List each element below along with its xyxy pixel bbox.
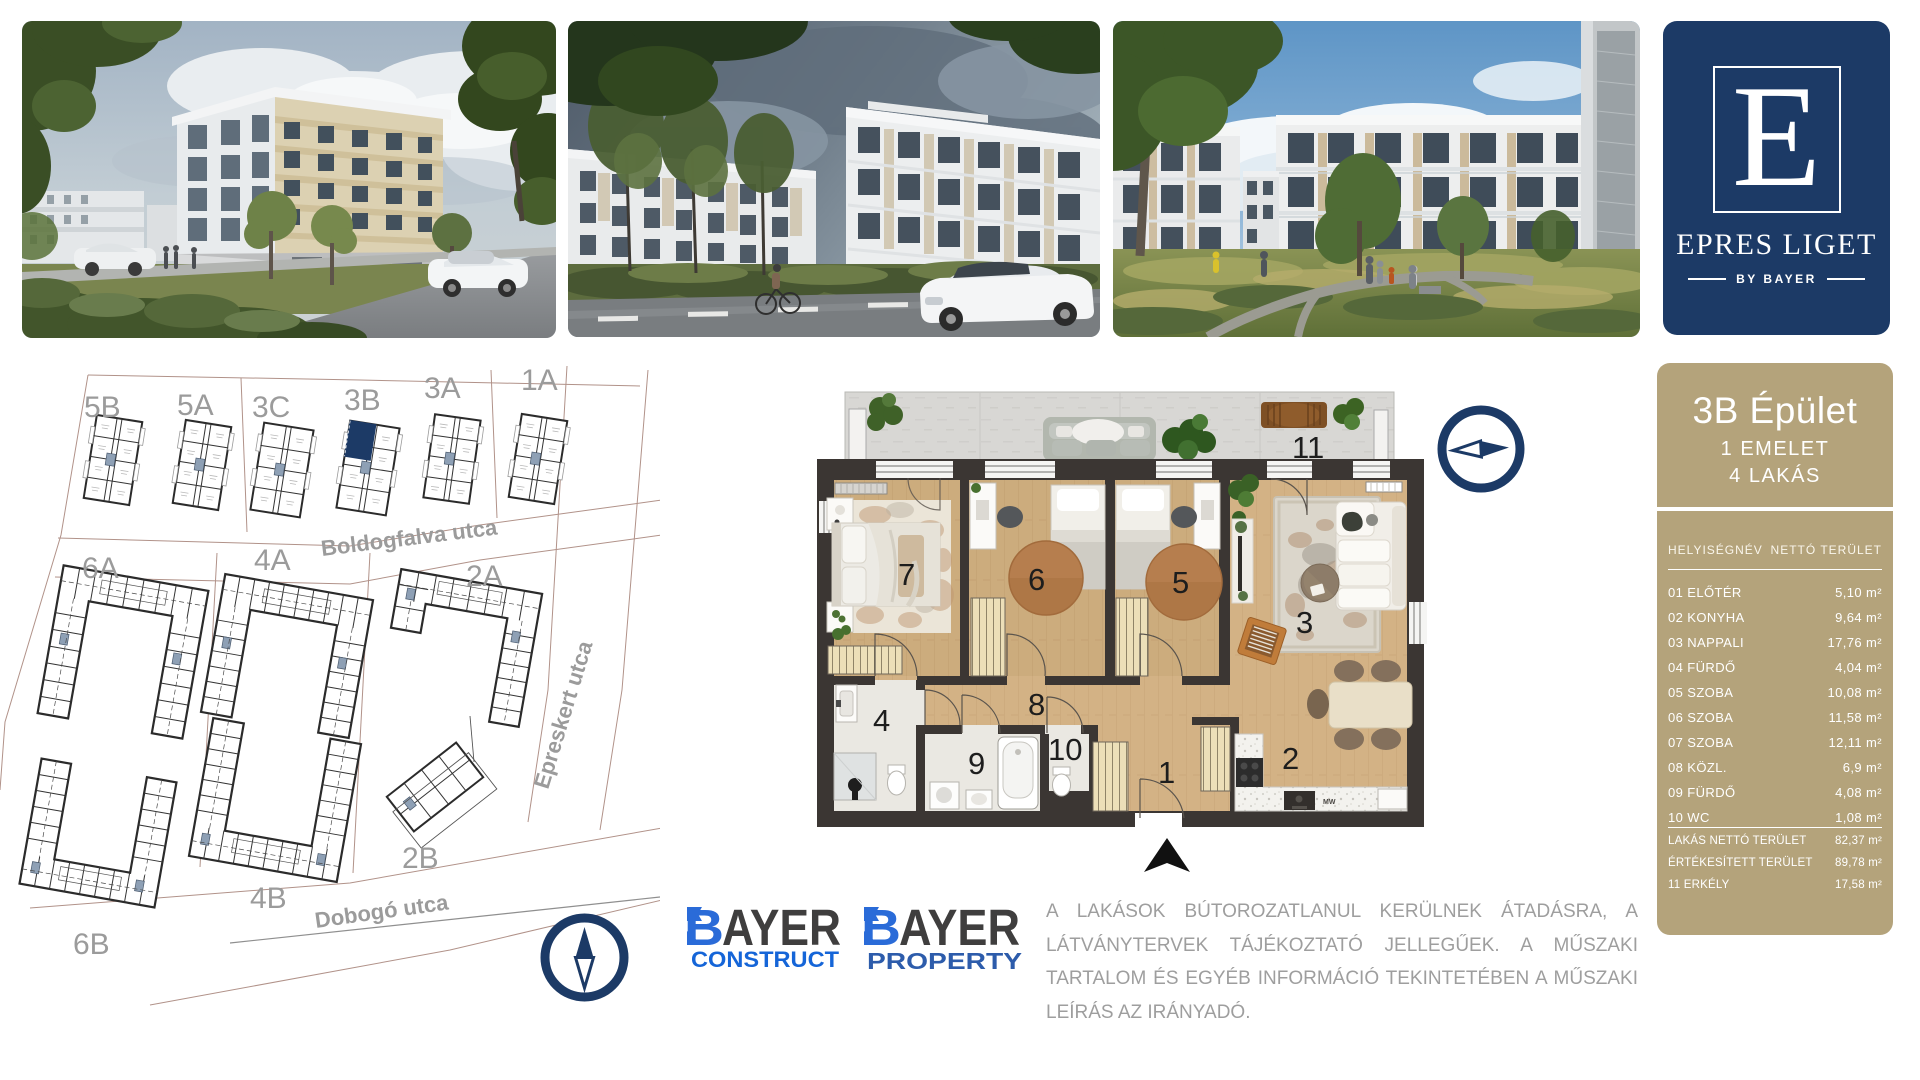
svg-text:5A: 5A xyxy=(177,389,214,422)
svg-text:6A: 6A xyxy=(82,552,119,585)
svg-text:3B: 3B xyxy=(344,384,381,417)
svg-text:1A: 1A xyxy=(521,364,558,397)
svg-text:PROPERTY: PROPERTY xyxy=(867,948,1022,974)
svg-text:11: 11 xyxy=(1292,430,1324,465)
svg-text:4: 4 xyxy=(873,703,890,738)
svg-text:4A: 4A xyxy=(254,544,291,577)
svg-text:3C: 3C xyxy=(252,391,290,424)
svg-text:10: 10 xyxy=(1048,732,1082,767)
svg-text:7: 7 xyxy=(898,557,915,592)
svg-text:5: 5 xyxy=(1172,565,1189,600)
svg-text:Epreskert utca: Epreskert utca xyxy=(529,637,598,791)
svg-text:9: 9 xyxy=(968,746,985,781)
svg-text:2: 2 xyxy=(1282,741,1299,776)
svg-text:6B: 6B xyxy=(73,928,110,961)
svg-text:2B: 2B xyxy=(402,842,439,875)
svg-text:Boldogfalva utca: Boldogfalva utca xyxy=(320,514,500,561)
svg-text:3A: 3A xyxy=(424,372,461,405)
svg-text:6: 6 xyxy=(1028,562,1045,597)
svg-text:1: 1 xyxy=(1158,755,1175,790)
svg-text:2A: 2A xyxy=(466,560,503,593)
svg-text:3: 3 xyxy=(1296,605,1313,640)
svg-text:MW: MW xyxy=(1323,799,1336,806)
svg-text:CONSTRUCT: CONSTRUCT xyxy=(691,947,840,972)
svg-text:5B: 5B xyxy=(84,391,121,424)
svg-text:4B: 4B xyxy=(250,882,287,915)
svg-text:8: 8 xyxy=(1028,687,1045,722)
